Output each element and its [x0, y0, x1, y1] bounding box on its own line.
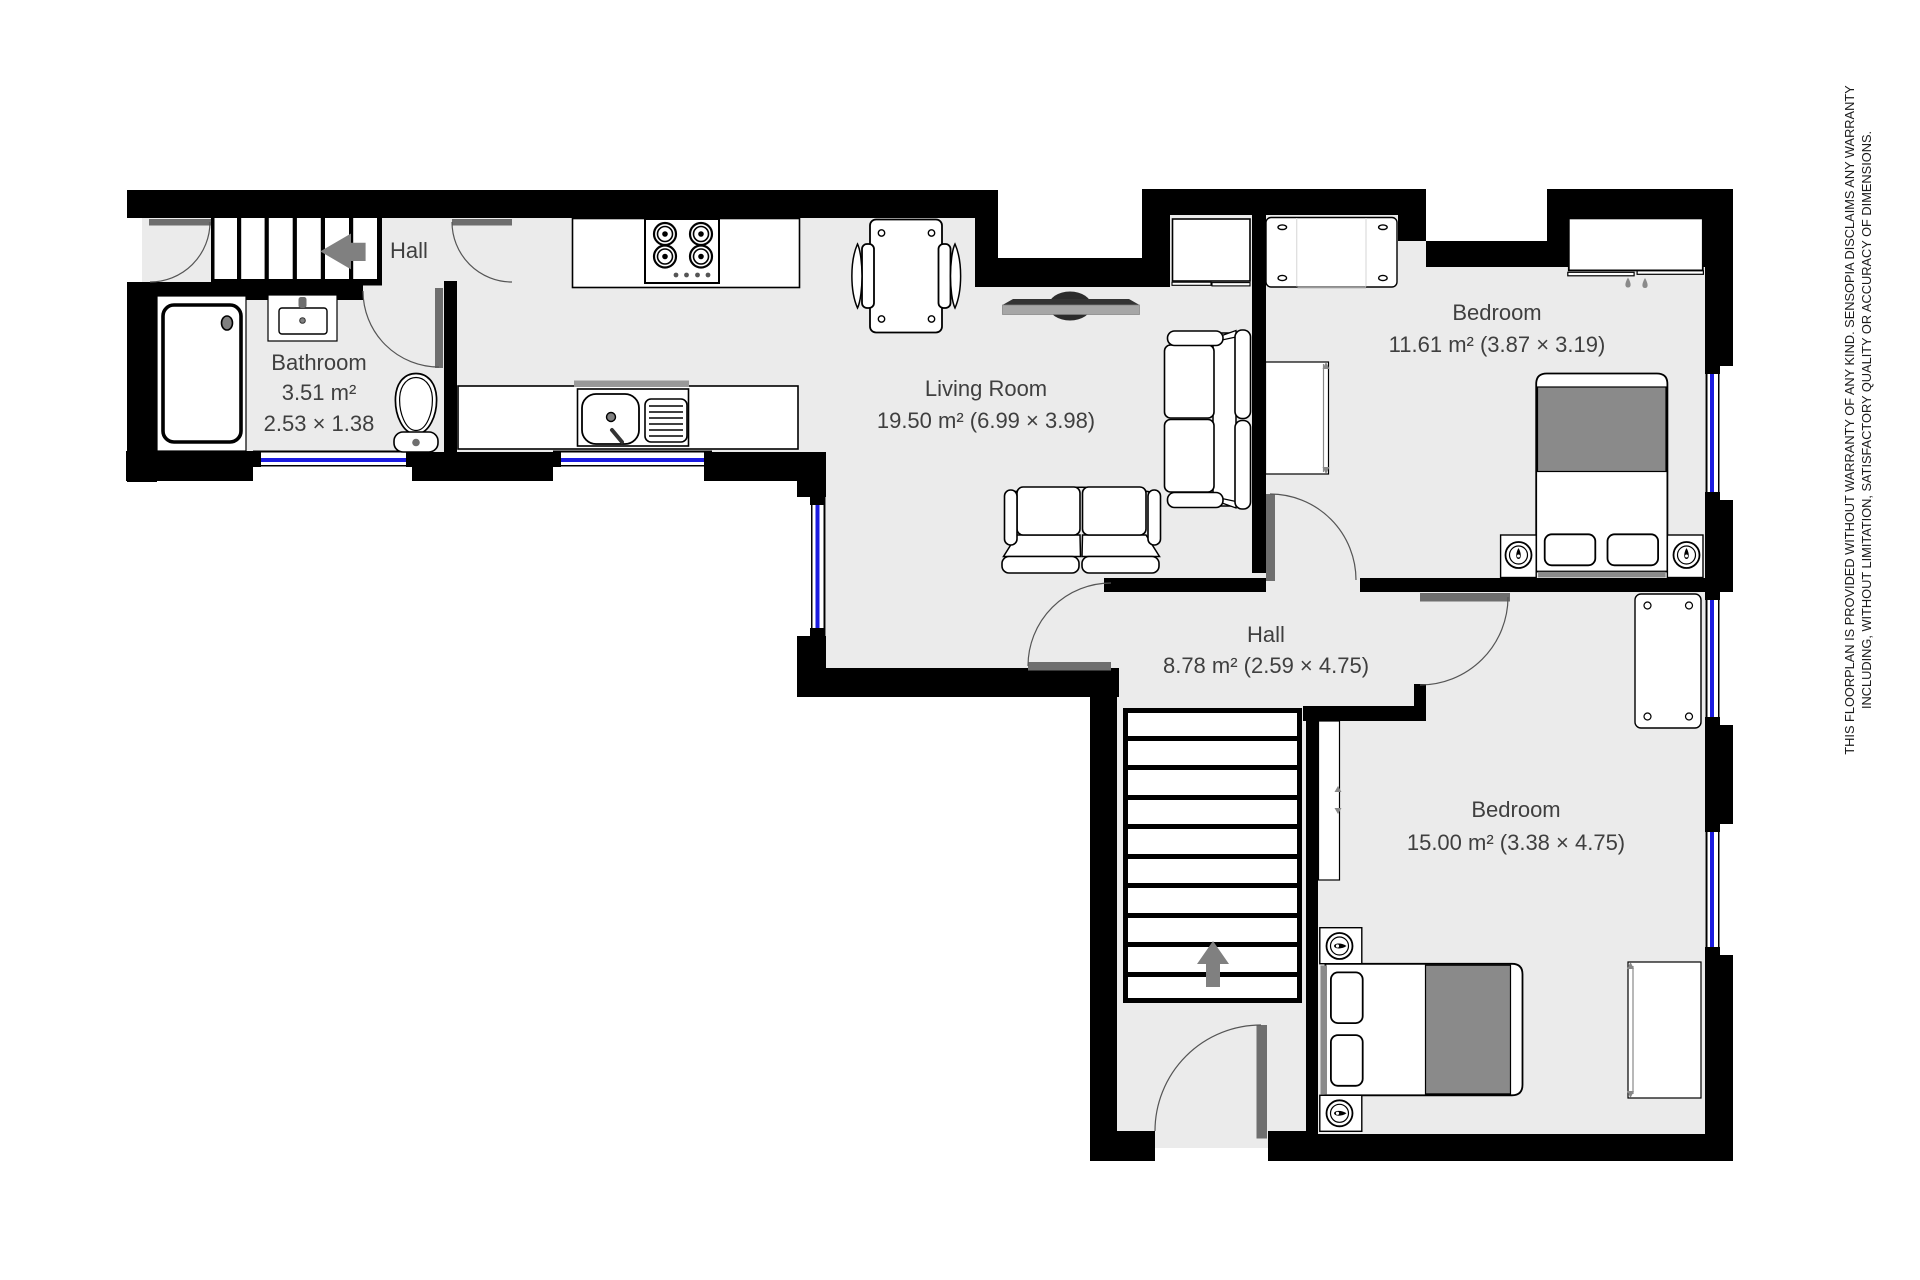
svg-text:15.00 m² (3.38 × 4.75): 15.00 m² (3.38 × 4.75) [1407, 830, 1625, 855]
svg-text:THIS FLOORPLAN IS PROVIDED WIT: THIS FLOORPLAN IS PROVIDED WITHOUT WARRA… [1842, 85, 1857, 755]
svg-text:Bedroom: Bedroom [1471, 797, 1560, 822]
svg-text:8.78 m² (2.59 × 4.75): 8.78 m² (2.59 × 4.75) [1163, 653, 1369, 678]
svg-text:11.61 m² (3.87 × 3.19): 11.61 m² (3.87 × 3.19) [1389, 332, 1606, 357]
svg-text:Bedroom: Bedroom [1452, 300, 1541, 325]
svg-text:2.53 × 1.38: 2.53 × 1.38 [264, 411, 375, 436]
svg-text:INCLUDING, WITHOUT LIMITATION,: INCLUDING, WITHOUT LIMITATION, SATISFACT… [1859, 131, 1874, 709]
svg-text:Living Room: Living Room [925, 376, 1047, 401]
svg-text:3.51 m²: 3.51 m² [282, 380, 357, 405]
svg-text:Hall: Hall [1247, 622, 1285, 647]
svg-text:Bathroom: Bathroom [271, 350, 366, 375]
svg-text:Hall: Hall [390, 238, 428, 263]
svg-text:19.50 m² (6.99 × 3.98): 19.50 m² (6.99 × 3.98) [877, 408, 1095, 433]
